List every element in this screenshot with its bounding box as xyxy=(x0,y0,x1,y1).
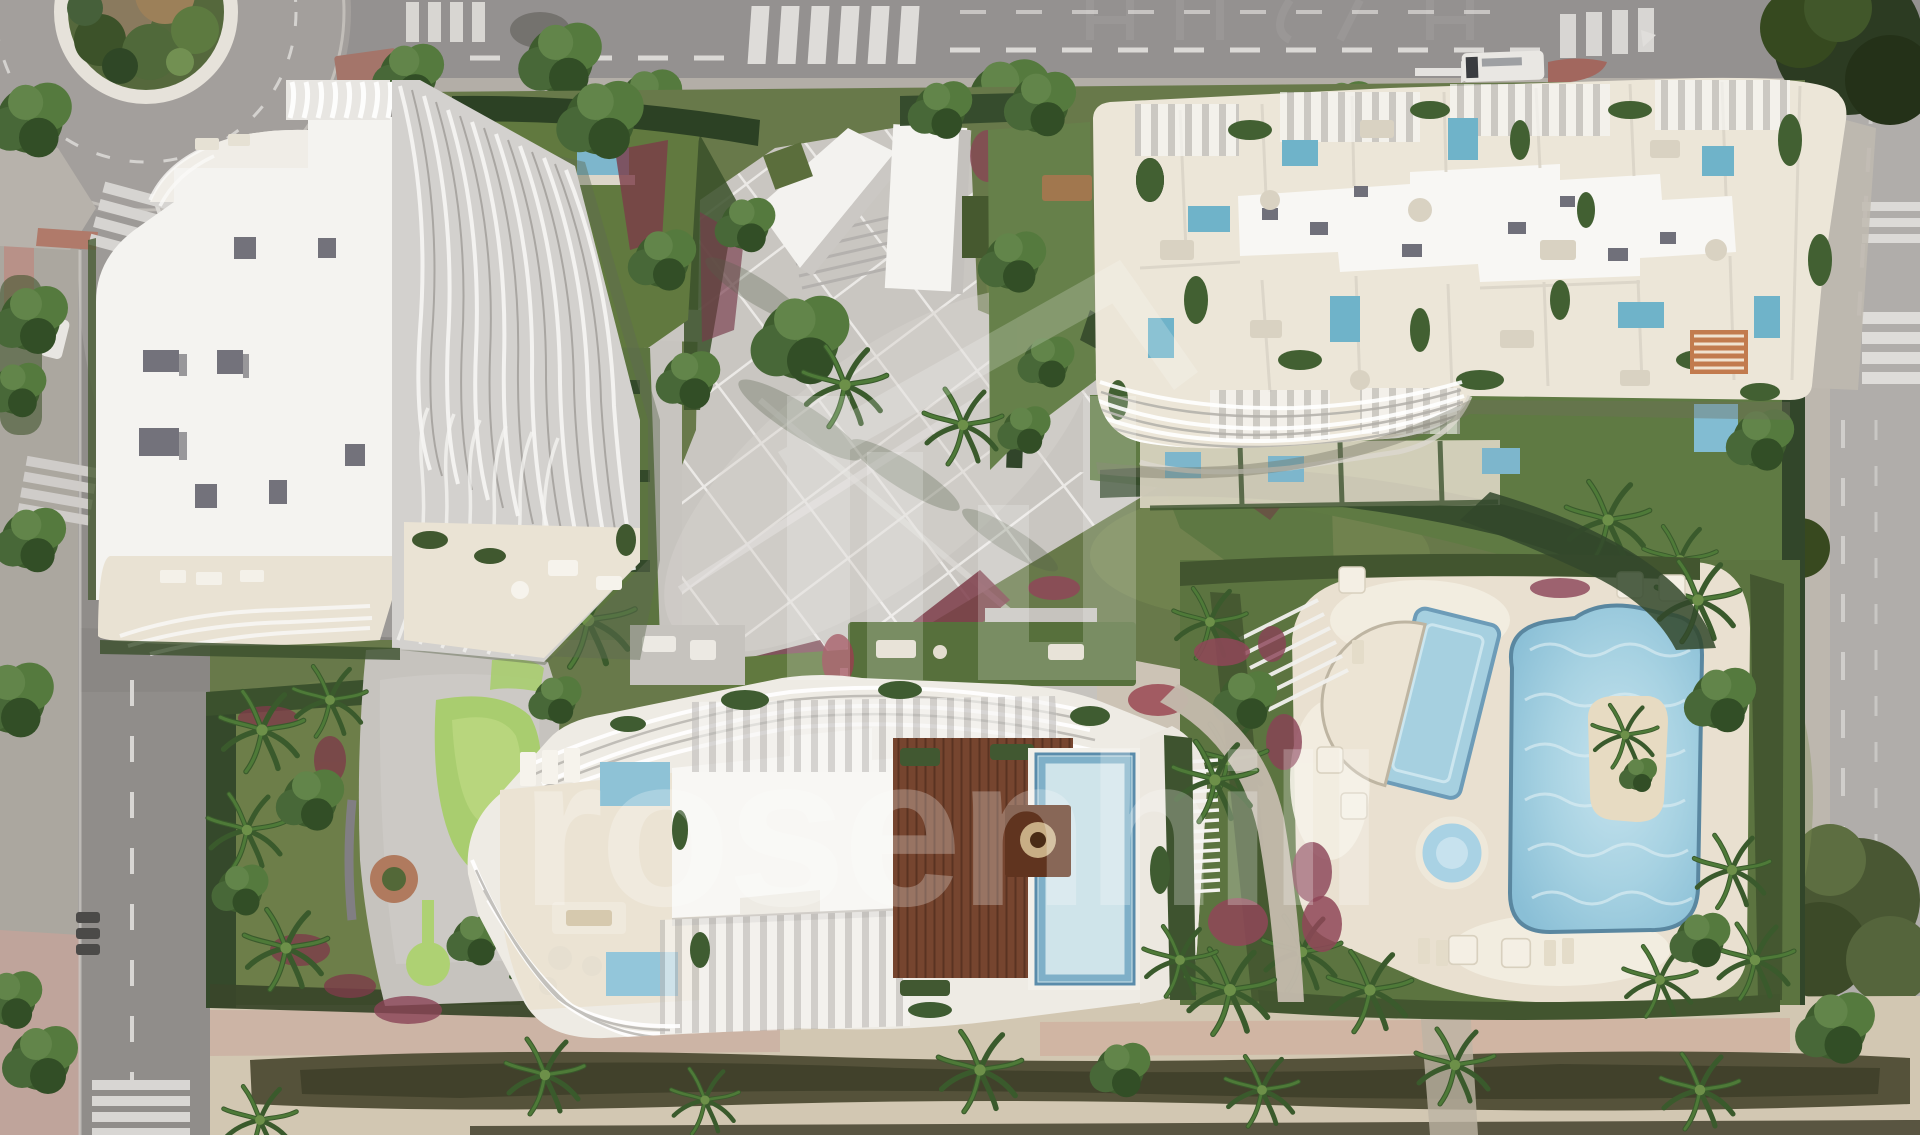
svg-text:rosenhill: rosenhill xyxy=(520,710,1380,951)
